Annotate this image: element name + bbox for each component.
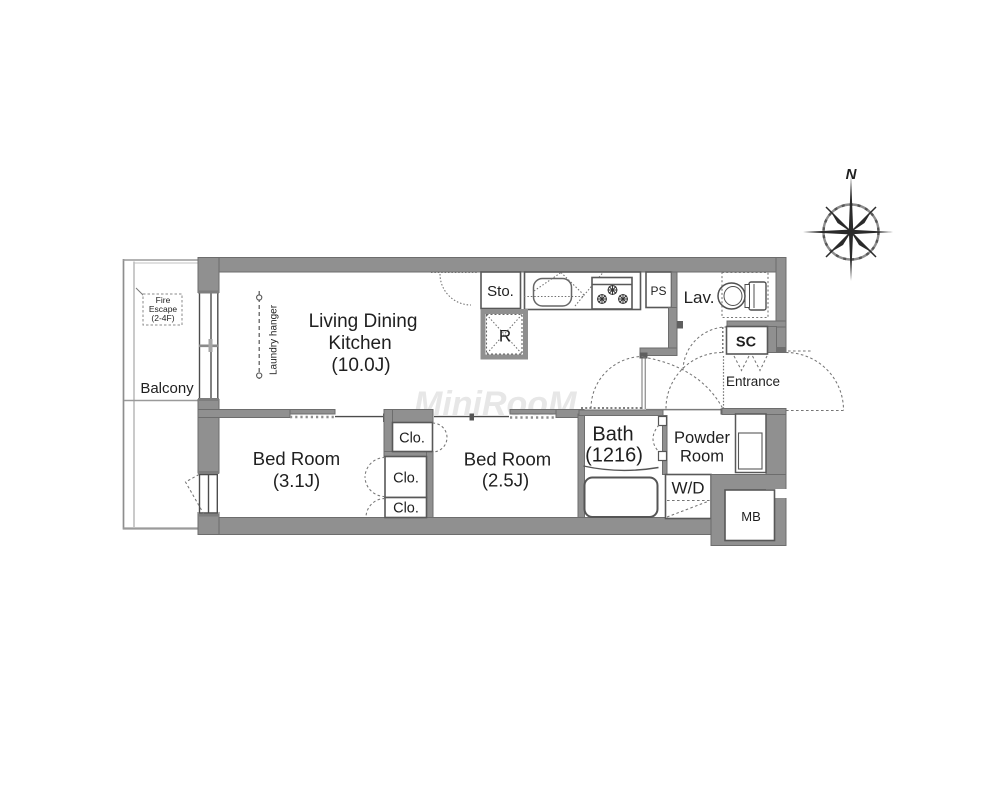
svg-text:Balcony: Balcony <box>140 380 194 397</box>
svg-text:Entrance: Entrance <box>726 374 780 389</box>
svg-text:SC: SC <box>736 335 757 351</box>
svg-text:Living Dining: Living Dining <box>309 311 418 332</box>
svg-text:R: R <box>499 327 511 346</box>
svg-text:N: N <box>846 166 858 183</box>
svg-text:Kitchen: Kitchen <box>328 333 391 354</box>
svg-text:Bed Room: Bed Room <box>253 448 340 469</box>
svg-text:MB: MB <box>741 509 761 524</box>
svg-text:Bath: Bath <box>592 424 633 446</box>
svg-text:(2.5J): (2.5J) <box>482 470 529 491</box>
svg-text:Room: Room <box>680 448 724 466</box>
svg-text:Clo.: Clo. <box>393 471 419 487</box>
svg-text:Clo.: Clo. <box>399 431 425 447</box>
svg-text:PS: PS <box>650 284 666 298</box>
svg-text:(1216): (1216) <box>585 445 643 467</box>
svg-text:Clo.: Clo. <box>393 501 419 517</box>
svg-text:Lav.: Lav. <box>684 288 715 307</box>
svg-text:Laundry hanger: Laundry hanger <box>269 304 280 375</box>
svg-text:(2-4F): (2-4F) <box>151 313 174 323</box>
svg-text:Sto.: Sto. <box>487 283 514 300</box>
svg-text:W/D: W/D <box>671 479 704 498</box>
svg-text:(3.1J): (3.1J) <box>273 470 320 491</box>
svg-text:(10.0J): (10.0J) <box>331 355 390 376</box>
svg-text:Powder: Powder <box>674 429 730 447</box>
svg-text:Bed Room: Bed Room <box>464 449 551 470</box>
